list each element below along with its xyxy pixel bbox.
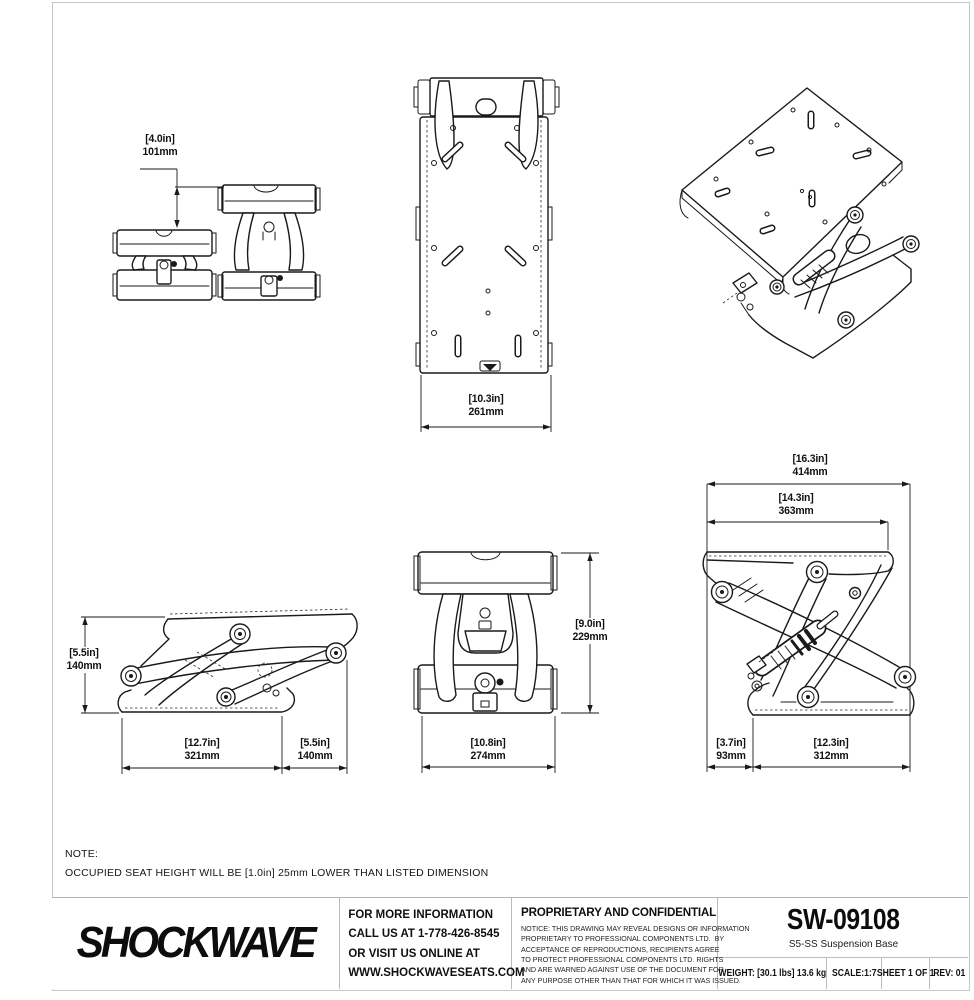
dim-mm: 229mm: [572, 631, 607, 644]
contact-info: FOR MORE INFORMATION CALL US AT 1-778-42…: [340, 905, 525, 981]
dim-inches: [14.3in]: [778, 492, 813, 505]
dimension-label-plate-width: [10.3in] 261mm: [468, 393, 503, 419]
rev-value: REV: 01: [933, 968, 965, 979]
dim-mm: 140mm: [66, 660, 101, 673]
view-isometric: [653, 63, 963, 373]
dim-inches: [10.8in]: [470, 737, 505, 750]
part-number: SW-09108: [787, 906, 900, 935]
dim-mm: 321mm: [184, 750, 219, 763]
part-spec-row: WEIGHT: [30.1 lbs] 13.6 kg SCALE:1:7 SHE…: [718, 958, 968, 989]
note-text: OCCUPIED SEAT HEIGHT WILL BE [1.0in] 25m…: [65, 867, 488, 879]
scale-value: SCALE:1:7: [832, 968, 877, 979]
scale-cell: SCALE:1:7: [826, 958, 881, 989]
dim-mm: 261mm: [468, 406, 503, 419]
part-identification: SW-09108 S5-SS Suspension Base: [718, 898, 968, 958]
dimension-label-base-length-side: [12.7in] 321mm: [184, 737, 219, 763]
view-top-plate: [403, 63, 571, 438]
iso-top-plate: [680, 88, 902, 294]
dim-mm: 140mm: [297, 750, 332, 763]
dimension-label-extended-height: [9.0in] 229mm: [571, 618, 610, 644]
dim-mm: 101mm: [142, 146, 177, 159]
dimension-label-base-length-rear: [12.3in] 312mm: [813, 737, 848, 763]
dim-inches: [12.7in]: [184, 737, 219, 750]
iso-scissor-and-base: [723, 207, 919, 358]
title-block-proprietary-cell: PROPRIETARY AND CONFIDENTIAL NOTICE: THI…: [511, 898, 717, 989]
dimension-label-travel: [4.0in] 101mm: [142, 133, 177, 159]
title-block-part-cell: SW-09108 S5-SS Suspension Base WEIGHT: […: [717, 898, 968, 989]
dimension-label-top-plate-length: [14.3in] 363mm: [778, 492, 813, 518]
dim-mm: 414mm: [792, 466, 827, 479]
note-label: NOTE:: [65, 848, 98, 860]
dim-mm: 312mm: [813, 750, 848, 763]
proprietary-notice: NOTICE: THIS DRAWING MAY REVEAL DESIGNS …: [521, 924, 713, 986]
dim-inches: [16.3in]: [792, 453, 827, 466]
front-tube-rail: [414, 78, 559, 169]
part-name: S5-SS Suspension Base: [788, 938, 897, 950]
dimension-label-front-offset: [3.7in] 93mm: [716, 737, 745, 763]
dimension-label-rear-overhang: [5.5in] 140mm: [297, 737, 332, 763]
front-extended-body: [414, 552, 557, 713]
dimension-label-collapsed-height: [5.5in] 140mm: [65, 647, 104, 673]
dim-inches: [4.0in]: [142, 133, 177, 146]
dim-inches: [5.5in]: [297, 737, 332, 750]
title-block: SHOCKWAVE FOR MORE INFORMATION CALL US A…: [52, 897, 968, 989]
dim-inches: [12.3in]: [813, 737, 848, 750]
title-block-logo-cell: SHOCKWAVE: [52, 898, 339, 989]
front-view-extended-small: [218, 185, 320, 300]
dim-inches: [9.0in]: [572, 618, 607, 631]
front-view-compressed-small: [113, 230, 216, 300]
dim-mm: 274mm: [470, 750, 505, 763]
dim-mm: 363mm: [778, 505, 813, 518]
dim-inches: [10.3in]: [468, 393, 503, 406]
view-front-travel: [108, 128, 328, 308]
drawing-sheet: [4.0in] 101mm [10.3in] 261mm [5.5in] 140…: [0, 0, 974, 1000]
dim-mm: 93mm: [716, 750, 745, 763]
rev-cell: REV: 01: [929, 958, 968, 989]
dim-inches: [5.5in]: [66, 647, 101, 660]
dim-inches: [3.7in]: [716, 737, 745, 750]
dimension-label-front-width: [10.8in] 274mm: [470, 737, 505, 763]
weight-value: WEIGHT: [30.1 lbs] 13.6 kg: [718, 968, 826, 979]
dimension-lines-travel: [140, 169, 224, 228]
title-block-contact-cell: FOR MORE INFORMATION CALL US AT 1-778-42…: [339, 898, 511, 989]
sheet-cell: SHEET 1 OF 1: [881, 958, 929, 989]
dimension-label-overall-length: [16.3in] 414mm: [792, 453, 827, 479]
sheet-value: SHEET 1 OF 1: [877, 968, 935, 979]
side-collapsed-body: [118, 609, 357, 712]
side-extended-body: [703, 552, 915, 715]
proprietary-heading: PROPRIETARY AND CONFIDENTIAL: [521, 905, 711, 919]
company-logo: SHOCKWAVE: [77, 919, 314, 968]
